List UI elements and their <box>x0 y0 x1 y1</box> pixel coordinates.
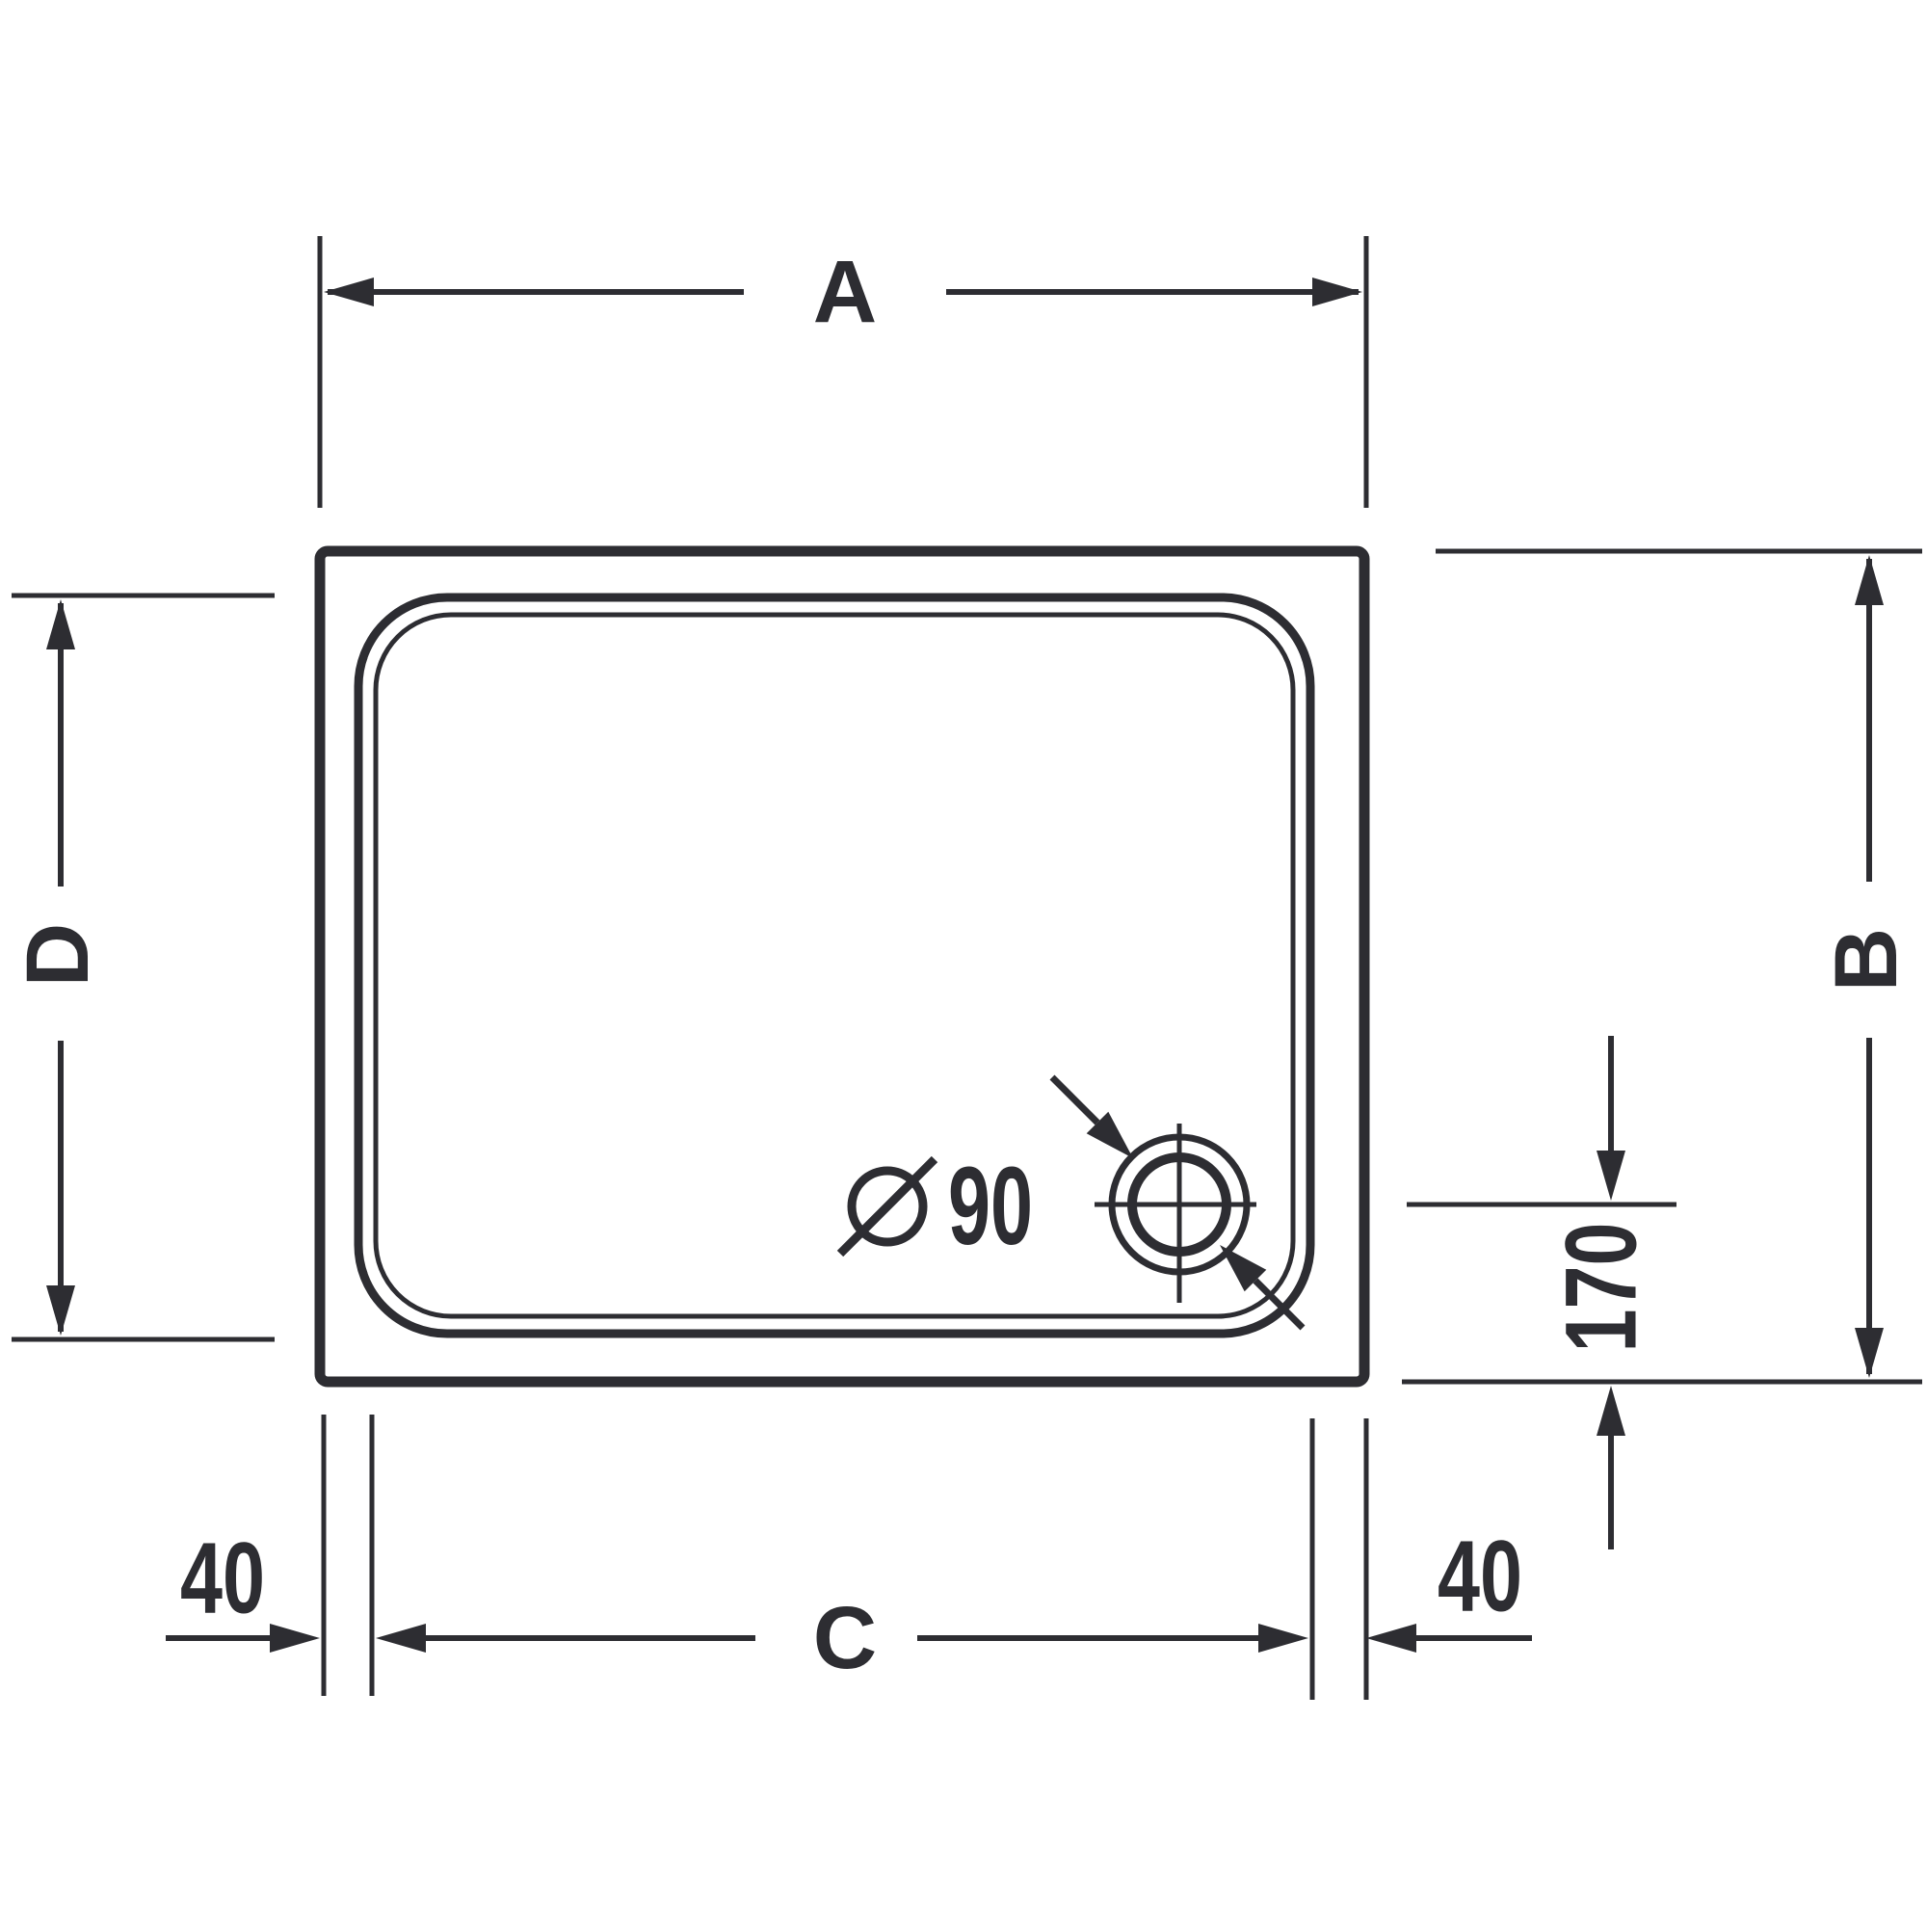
dimension-d: D <box>9 595 275 1339</box>
dim-40-right-label: 40 <box>1438 1521 1522 1633</box>
dim-b-arrowhead-top <box>1855 555 1884 605</box>
drain-diameter-label: 90 <box>840 1145 1033 1268</box>
dimension-b: B <box>1402 551 1922 1382</box>
drain-leader-line-upper <box>1052 1077 1097 1123</box>
diagram-canvas: 90 A D B <box>0 0 1927 1927</box>
tray-rim-outer <box>358 597 1310 1334</box>
dim-d-label: D <box>9 923 107 987</box>
dim-c-arrowhead-right <box>1258 1624 1308 1653</box>
dim-40-left-arrowhead <box>270 1624 320 1653</box>
dim-a-label: A <box>813 243 877 341</box>
dim-170-arrowhead-down <box>1597 1151 1625 1201</box>
dim-170-label: 170 <box>1545 1223 1658 1353</box>
tray-outline <box>320 551 1364 1382</box>
dim-170-arrowhead-up <box>1597 1386 1625 1436</box>
dimension-a: A <box>320 236 1366 508</box>
dim-c-arrowhead-left <box>376 1624 426 1653</box>
dim-b-arrowhead-bottom <box>1855 1328 1884 1378</box>
dim-b-label: B <box>1817 928 1915 992</box>
dimension-170: 170 <box>1407 1036 1676 1549</box>
drain-diameter-value: 90 <box>948 1145 1033 1268</box>
dim-d-arrowhead-top <box>46 599 75 649</box>
dim-c-label: C <box>813 1589 877 1687</box>
dimension-bottom-row: 40 C 40 <box>166 1415 1532 1700</box>
dim-d-arrowhead-bottom <box>46 1285 75 1336</box>
tray-outer-rect <box>320 551 1364 1382</box>
dim-40-right-arrowhead <box>1366 1624 1416 1653</box>
dim-a-arrowhead-left <box>324 278 374 306</box>
drain <box>1052 1077 1303 1328</box>
shower-tray-dimension-diagram: 90 A D B <box>0 0 1927 1927</box>
tray-rim-inner <box>376 615 1293 1316</box>
dim-40-left-label: 40 <box>180 1522 265 1635</box>
dim-a-arrowhead-right <box>1312 278 1362 306</box>
